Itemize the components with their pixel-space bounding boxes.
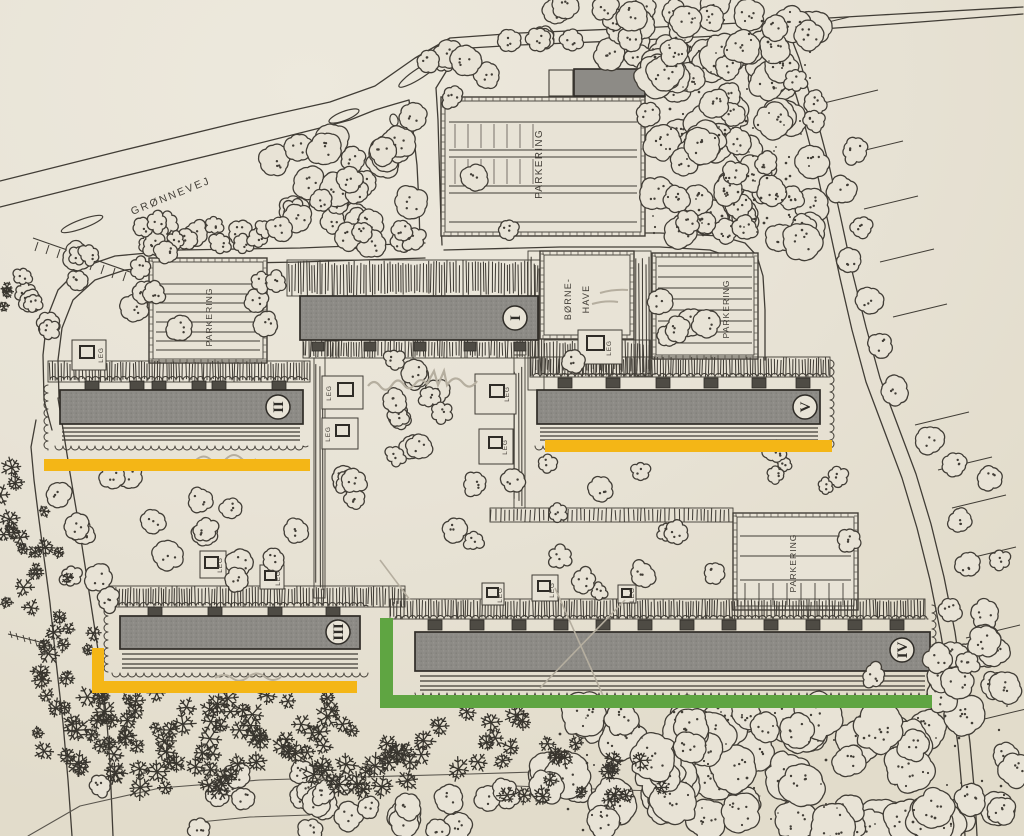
svg-text:LEG: LEG <box>629 587 636 602</box>
svg-text:LEG: LEG <box>325 426 332 441</box>
svg-text:PARKERING: PARKERING <box>204 288 214 347</box>
svg-text:BØRNE-: BØRNE- <box>563 278 573 320</box>
svg-text:I: I <box>508 315 524 321</box>
svg-text:LEG: LEG <box>606 340 613 355</box>
svg-text:LEG: LEG <box>549 582 556 597</box>
svg-text:LEG: LEG <box>326 385 333 400</box>
svg-text:LEG: LEG <box>497 587 504 602</box>
svg-text:LEG: LEG <box>275 570 282 585</box>
svg-text:LEG: LEG <box>217 557 224 572</box>
svg-text:V: V <box>798 401 814 412</box>
svg-text:III: III <box>331 623 347 641</box>
svg-text:LEG: LEG <box>502 439 509 454</box>
svg-text:HAVE: HAVE <box>581 285 591 314</box>
svg-text:PARKERING: PARKERING <box>788 534 798 593</box>
svg-text:PARKERING: PARKERING <box>721 280 731 339</box>
svg-text:II: II <box>271 401 287 413</box>
svg-text:IV: IV <box>895 641 911 658</box>
svg-text:PARKERING: PARKERING <box>534 129 545 199</box>
svg-text:LEG: LEG <box>504 386 511 401</box>
svg-text:LEG: LEG <box>98 347 105 362</box>
